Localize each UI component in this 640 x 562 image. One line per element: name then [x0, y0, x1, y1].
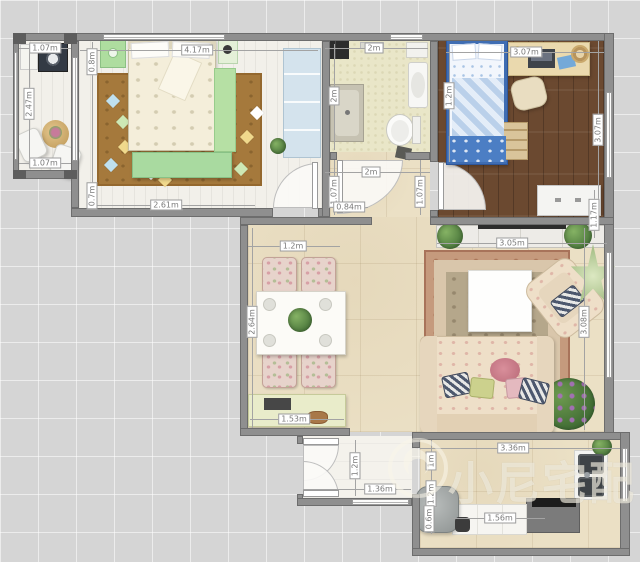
- kids-bed-footboard: [448, 136, 506, 162]
- wall-bathroom-bottom-a: [330, 152, 337, 160]
- dim-dining-left: 2.64m: [247, 306, 258, 338]
- place-setting-1: [263, 298, 276, 311]
- watermark-text: 小尼宅配: [448, 447, 636, 512]
- balcony-table-flowers[interactable]: [49, 126, 62, 139]
- dim-kids-top: 3.07m: [510, 47, 542, 58]
- dining-chair-3[interactable]: [262, 351, 297, 388]
- dim-dining-top: 1.2m: [280, 241, 307, 252]
- dim-balcony-top: 1.07m: [29, 43, 61, 54]
- bed-green-runner: [214, 68, 236, 152]
- dim-hall-door: 0.84m: [333, 202, 365, 213]
- dim-hall-right: 1.07m: [415, 176, 426, 208]
- wall-entry-left-a: [297, 436, 303, 444]
- wall-entry-top: [240, 428, 350, 436]
- wall-bathroom-kids-a: [430, 41, 438, 162]
- dresser-handle-2: [575, 198, 581, 202]
- wall-entry-kitchen-b: [412, 494, 420, 556]
- bedroom-wardrobe[interactable]: [283, 48, 321, 158]
- sofa-pillow-green: [469, 377, 495, 399]
- sofa-armrest-left: [420, 336, 437, 433]
- place-setting-3: [263, 334, 276, 347]
- balcony-divider-window[interactable]: [72, 57, 78, 161]
- dim-bedroom-top: 4.17m: [181, 45, 213, 56]
- living-room-window[interactable]: [606, 252, 612, 378]
- dim-kitchen-bottom: 1.56m: [484, 513, 516, 524]
- watermark-logo-icon: [388, 438, 448, 498]
- dim-sideboard: 1.53m: [278, 414, 310, 425]
- bathroom-window[interactable]: [390, 34, 423, 40]
- place-setting-4: [319, 334, 332, 347]
- bed-bench[interactable]: [132, 152, 232, 178]
- sofa-back: [420, 414, 554, 433]
- dim-kitchen-left-c: 0.6m: [424, 506, 435, 533]
- wall-kitchen-bottom: [412, 548, 630, 556]
- dim-bedroom-left-upper: 0.8m: [87, 49, 98, 76]
- dim-bedroom-left-lower: 0.7m: [87, 183, 98, 210]
- sideboard-radio: [264, 398, 291, 410]
- balcony-window[interactable]: [14, 52, 18, 160]
- desk-tray: [571, 45, 589, 63]
- toilet-seat: [391, 120, 409, 142]
- bedroom-door-leaf[interactable]: [312, 162, 318, 209]
- dim-bathroom-left: 2m: [329, 87, 340, 106]
- wall-bathroom-kids-b: [430, 210, 438, 217]
- dining-chair-1[interactable]: [262, 257, 297, 294]
- dim-hall-width: 2m: [362, 167, 381, 178]
- wall-kitchen-top: [412, 432, 630, 440]
- dim-entry-height: 1.2m: [350, 453, 361, 480]
- dim-balcony-left: 2.47m: [24, 88, 35, 120]
- bathroom-cabinet[interactable]: [406, 42, 428, 58]
- dresser-handle-1: [555, 198, 561, 202]
- floor-plan-canvas: 1.07m 2.47m 1.07m 4.17m 0.8m 0.7m 2.61m …: [0, 0, 640, 562]
- rice-cooker: [455, 517, 470, 532]
- table-centerpiece: [288, 308, 312, 332]
- console-plant-left[interactable]: [437, 223, 463, 249]
- wall-corner-block-4: [64, 170, 77, 179]
- dim-kids-right-lower: 1.17m: [589, 199, 600, 231]
- entry-door-leaf-upper[interactable]: [303, 438, 339, 445]
- wall-corner-block-1: [13, 33, 26, 44]
- shower-drain: [345, 110, 350, 115]
- dim-bedroom-bottom: 2.61m: [150, 200, 182, 211]
- dining-chair-4[interactable]: [301, 351, 336, 388]
- kids-blanket: [452, 78, 504, 136]
- dim-kids-right: 3.07m: [593, 114, 604, 146]
- bedroom-plant[interactable]: [270, 138, 286, 154]
- sideboard-bread: [307, 411, 328, 424]
- bedroom-window[interactable]: [103, 34, 225, 40]
- wall-bathroom-bottom-b: [405, 152, 430, 160]
- toilet-tank: [412, 116, 421, 144]
- sink-basin: [411, 72, 425, 98]
- dining-chair-2[interactable]: [301, 257, 336, 294]
- wall-corner-block-2: [64, 33, 77, 44]
- wall-kids-bottom: [430, 217, 614, 225]
- dim-bathroom-top: 2m: [365, 43, 384, 54]
- kids-room-window[interactable]: [606, 92, 612, 178]
- entry-door-leaf-lower[interactable]: [303, 490, 339, 497]
- dim-tv-console: 3.05m: [496, 238, 528, 249]
- kids-room-door-leaf[interactable]: [438, 162, 444, 210]
- wall-dining-top: [240, 217, 372, 225]
- entry-window[interactable]: [352, 499, 409, 505]
- wall-corner-block-3: [13, 170, 26, 179]
- dim-kids-bed: 1.2m: [444, 83, 455, 110]
- coffee-table[interactable]: [468, 270, 532, 332]
- place-setting-2: [319, 298, 332, 311]
- dim-balcony-bottom: 1.07m: [29, 158, 61, 169]
- dim-living-right: 3.08m: [579, 306, 590, 338]
